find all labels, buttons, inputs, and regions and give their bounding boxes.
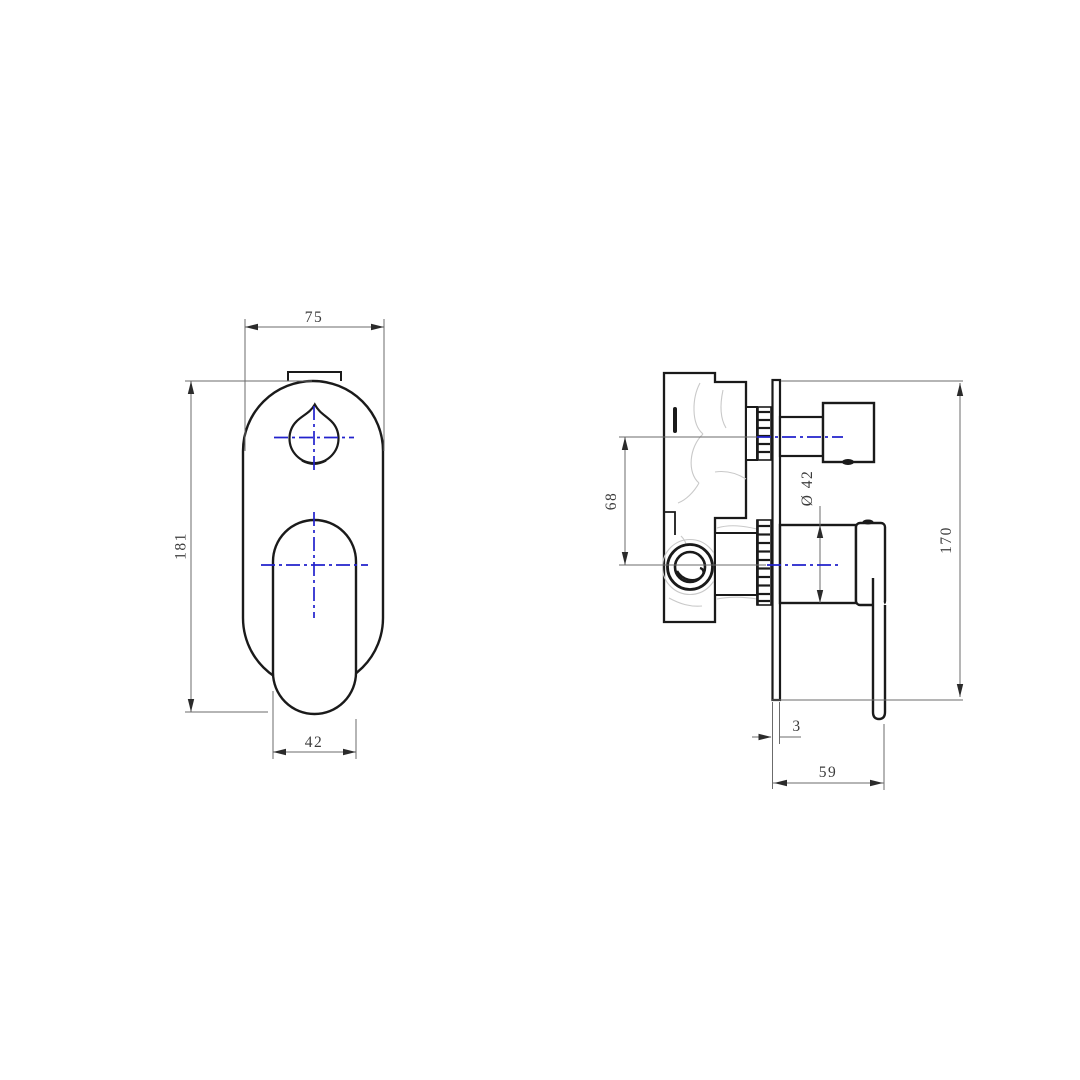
dim-handle-width: 42 [305, 734, 324, 751]
upper-cartridge-nut [757, 407, 771, 460]
dim-plate-thickness: 3 [792, 718, 801, 735]
knob-setscrew-dome [842, 459, 854, 465]
dim-plate-width: 75 [305, 309, 324, 326]
handle-cap [856, 523, 885, 605]
inlet-port [668, 545, 713, 590]
dim-cartridge-diameter: Ø 42 [799, 470, 816, 507]
side-view [663, 373, 886, 719]
lower-stem-block [715, 533, 757, 595]
dim-projection: 59 [819, 764, 838, 781]
lower-cartridge-nut [757, 520, 771, 605]
dim-plate-height: 170 [938, 526, 955, 554]
front-wall-plate [288, 372, 341, 381]
diverter-knob-side [823, 403, 874, 462]
drawing-canvas: 75 181 42 68 Ø 42 170 3 59 [0, 0, 1080, 1080]
upper-stem-block [746, 407, 757, 460]
technical-drawing-svg: 75 181 42 68 Ø 42 170 3 59 [0, 0, 1080, 1080]
dim-center-spacing: 68 [603, 492, 620, 511]
front-view [243, 372, 383, 714]
cap-top-dome [863, 520, 874, 525]
dim-overall-height: 181 [173, 532, 190, 560]
